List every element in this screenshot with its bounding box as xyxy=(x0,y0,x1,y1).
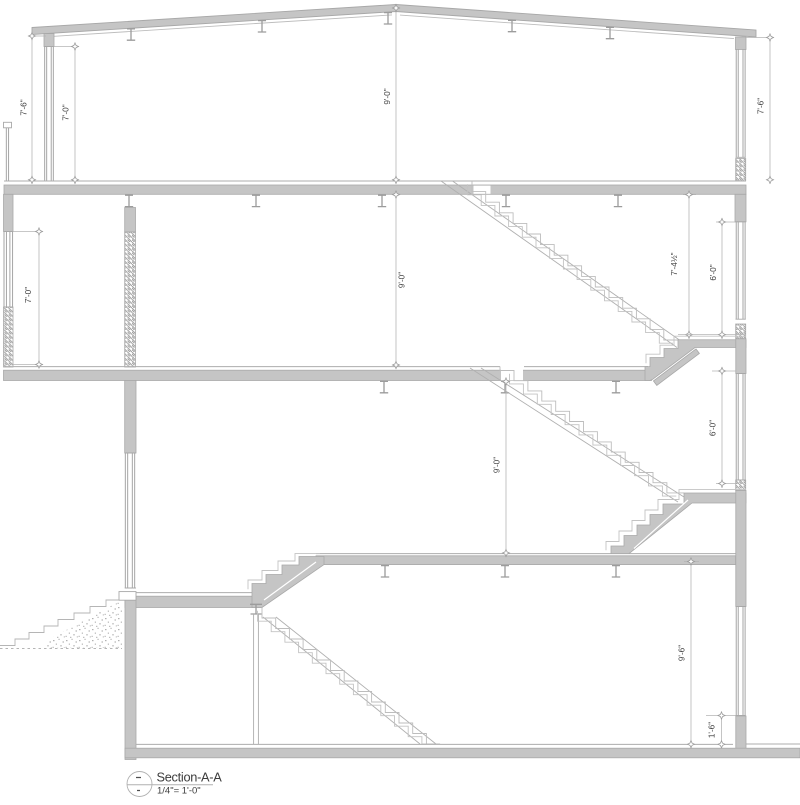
svg-text:7'-4½": 7'-4½" xyxy=(670,252,679,275)
svg-text:7'-0": 7'-0" xyxy=(62,104,71,120)
svg-text:7'-0": 7'-0" xyxy=(24,287,33,303)
svg-text:9'-0": 9'-0" xyxy=(493,457,502,473)
svg-text:6'-0": 6'-0" xyxy=(709,264,718,280)
svg-text:9'-6": 9'-6" xyxy=(678,645,687,661)
svg-text:Section-A-A: Section-A-A xyxy=(157,770,223,785)
svg-text:9'-0": 9'-0" xyxy=(383,88,392,104)
svg-text:7'-6": 7'-6" xyxy=(757,98,766,114)
svg-text:1/4"= 1'-0": 1/4"= 1'-0" xyxy=(157,786,201,797)
svg-text:7'-6": 7'-6" xyxy=(20,99,29,115)
svg-text:1'-6": 1'-6" xyxy=(708,722,717,738)
svg-text:6'-0": 6'-0" xyxy=(709,420,718,436)
svg-text:9'-0": 9'-0" xyxy=(398,272,407,288)
